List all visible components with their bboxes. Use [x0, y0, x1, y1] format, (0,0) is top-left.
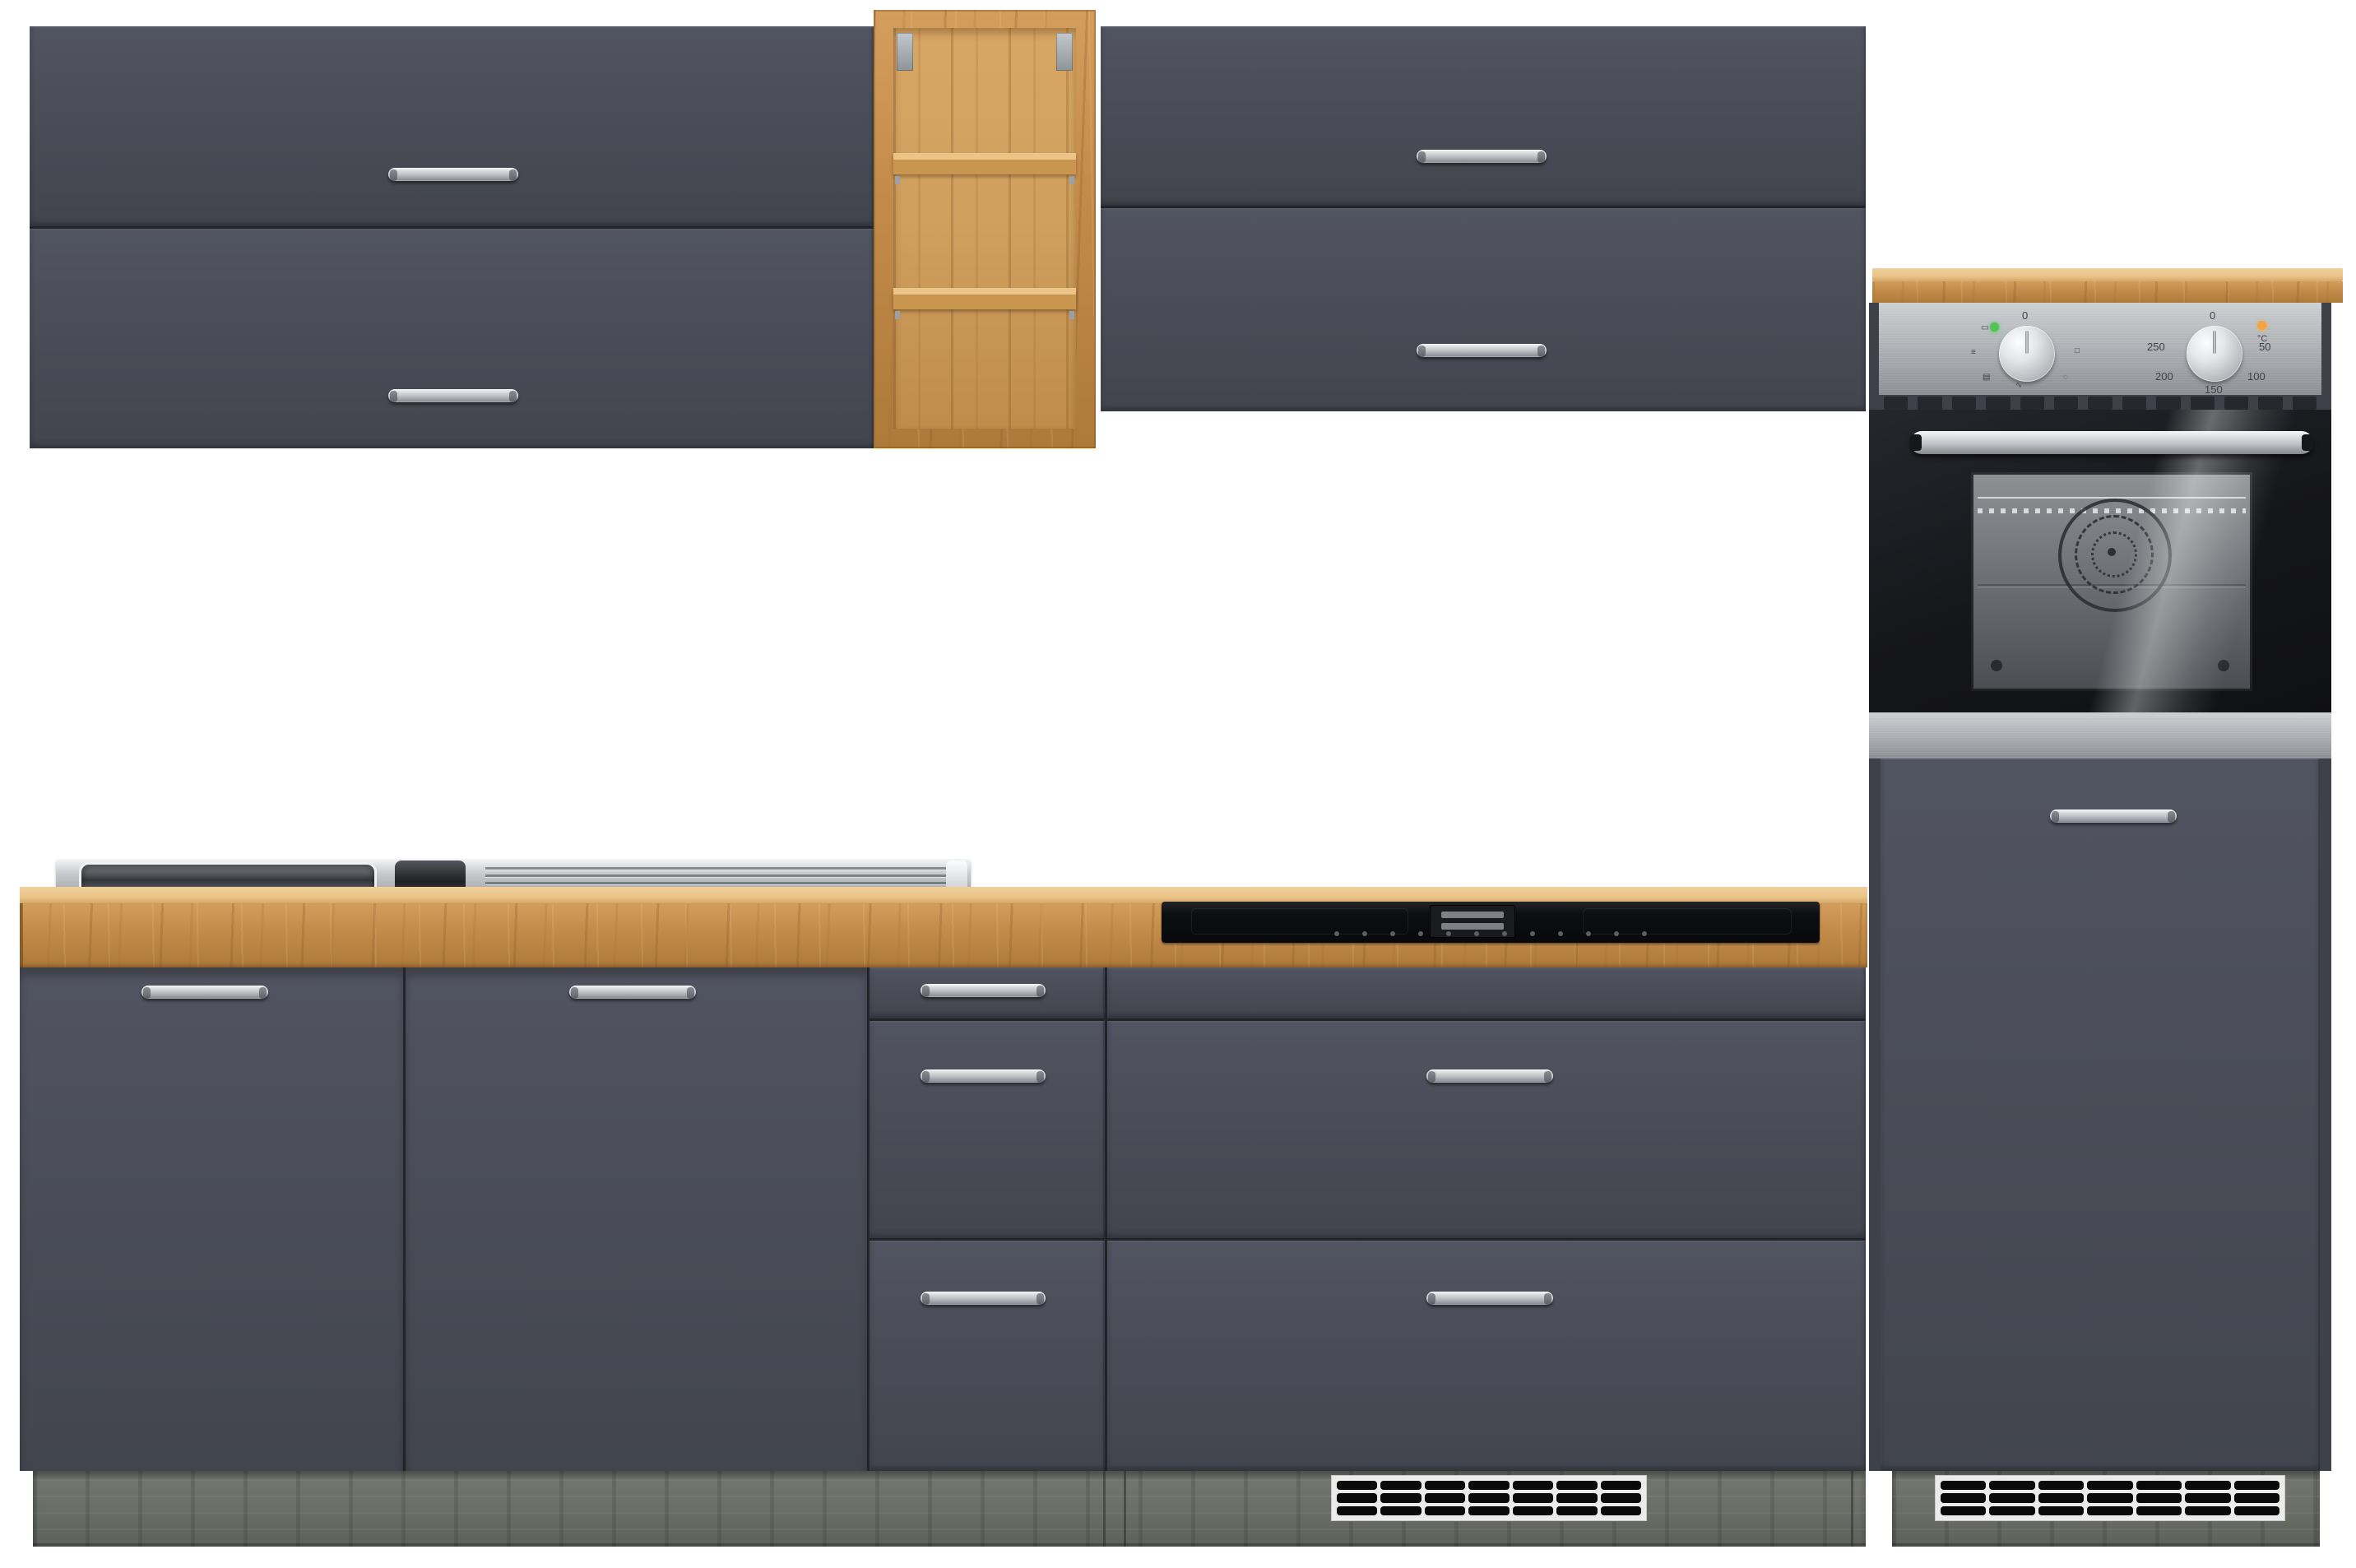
shelf-back-panel	[893, 28, 1076, 429]
worktop-top-edge	[20, 887, 1867, 903]
hob-vent-slat-icon	[1441, 923, 1504, 930]
wide-drawer-middle[interactable]	[1107, 1021, 1866, 1238]
base-door-1[interactable]	[20, 967, 403, 1471]
shelf-pin-icon	[895, 176, 900, 184]
oven-heat-light	[2257, 321, 2266, 330]
function-knob-zero-label: 0	[2022, 309, 2028, 322]
shelf-pin-icon	[1069, 311, 1074, 319]
narrow-drawer-middle-handle[interactable]	[921, 1069, 1046, 1083]
narrow-drawer-bottom-handle[interactable]	[921, 1292, 1046, 1305]
wide-drawer-bottom[interactable]	[1107, 1241, 1866, 1471]
base-door-1-handle[interactable]	[141, 986, 268, 999]
wall-right-flap-top[interactable]	[1101, 26, 1866, 206]
tall-cabinet-worktop	[1872, 281, 2343, 303]
temp-label-150: 150	[2205, 383, 2223, 396]
oven-door-handle[interactable]	[1910, 431, 2313, 454]
oven-control-panel: 0 ▭ ≡ ▤ ∿ ◌ □ 0 250 200 150 100 50 °C	[1879, 303, 2321, 395]
oven-vent-row	[1884, 397, 2317, 410]
narrow-drawer-top-handle[interactable]	[921, 984, 1046, 997]
oven-handle-cap-icon	[2302, 434, 2313, 451]
hob-controls[interactable]	[1334, 931, 1647, 936]
shelf-hinge-right-icon	[1056, 33, 1073, 71]
oven-function-icon: ▭	[1981, 324, 1988, 332]
oven-function-icon: ∿	[2015, 382, 2022, 390]
base-door-2-handle[interactable]	[569, 986, 696, 999]
oven-function-icon: ▤	[1983, 373, 1990, 382]
hob-vent-slat-icon	[1441, 912, 1504, 918]
base-door-2[interactable]	[406, 967, 867, 1471]
temp-label-250: 250	[2147, 341, 2165, 353]
oven-handle-cap-icon	[1910, 434, 1922, 451]
oven-glass-reflection	[1869, 410, 2331, 758]
narrow-drawer-middle[interactable]	[870, 1021, 1105, 1238]
drainer-groove	[485, 867, 958, 870]
oven-function-icon: □	[2075, 347, 2080, 355]
wall-left-top-handle[interactable]	[388, 168, 518, 181]
tall-oven-cabinet: 0 ▭ ≡ ▤ ∿ ◌ □ 0 250 200 150 100 50 °C	[1869, 303, 2331, 1471]
temp-label-200: 200	[2155, 370, 2173, 383]
wall-left-bottom-handle[interactable]	[388, 389, 518, 402]
temp-knob-zero-label: 0	[2210, 309, 2215, 322]
shelf-board-2[interactable]	[893, 288, 1076, 309]
shelf-pin-icon	[1069, 176, 1074, 184]
oven-power-light	[1990, 322, 1999, 332]
oven-temperature-knob[interactable]	[2187, 326, 2242, 382]
wall-right-bottom-handle[interactable]	[1417, 344, 1547, 357]
wall-left-flap-bottom[interactable]	[30, 229, 874, 448]
oven-bottom-trim	[1869, 712, 2331, 758]
shelf-board-1[interactable]	[893, 153, 1076, 174]
tall-cabinet-door[interactable]	[1881, 758, 2320, 1471]
drainer-groove	[485, 874, 958, 877]
temp-label-100: 100	[2247, 370, 2266, 383]
induction-hob	[1162, 902, 1820, 943]
plinth-seam	[1124, 1471, 1126, 1547]
wide-top-panel	[1107, 967, 1866, 1018]
wall-cabinet-right	[1101, 26, 1866, 411]
tall-cabinet-worktop-edge	[1872, 268, 2343, 281]
wall-right-top-handle[interactable]	[1417, 150, 1547, 163]
oven-function-icon: ◌	[2063, 373, 2068, 382]
tall-cabinet-door-handle[interactable]	[2050, 810, 2177, 823]
wide-drawer-bottom-handle[interactable]	[1426, 1292, 1553, 1305]
wall-left-flap-top[interactable]	[30, 26, 874, 226]
open-shelf-unit	[874, 10, 1096, 448]
drawer-unit-wide	[1107, 967, 1866, 1471]
base-vent-grille-icon	[1331, 1475, 1647, 1521]
shelf-pin-icon	[895, 311, 900, 319]
tall-cabinet-vent-grille-icon	[1935, 1475, 2285, 1521]
oven-function-knob[interactable]	[1999, 326, 2055, 382]
shelf-hinge-left-icon	[897, 33, 913, 71]
wide-drawer-middle-handle[interactable]	[1426, 1069, 1553, 1083]
wall-cabinet-left	[30, 26, 874, 448]
wall-right-flap-bottom[interactable]	[1101, 208, 1866, 411]
plinth-seam	[1851, 1471, 1853, 1547]
narrow-drawer-bottom[interactable]	[870, 1241, 1105, 1471]
oven-function-icon: ≡	[1971, 349, 1976, 357]
oven-door[interactable]	[1869, 410, 2331, 758]
temp-unit-label: °C	[2257, 334, 2267, 344]
plinth-seam	[1103, 1471, 1106, 1547]
drawer-stack-narrow	[870, 967, 1105, 1471]
drainer-groove	[485, 882, 958, 884]
kitchen-product-photo: 0 ▭ ≡ ▤ ∿ ◌ □ 0 250 200 150 100 50 °C	[0, 0, 2356, 1568]
